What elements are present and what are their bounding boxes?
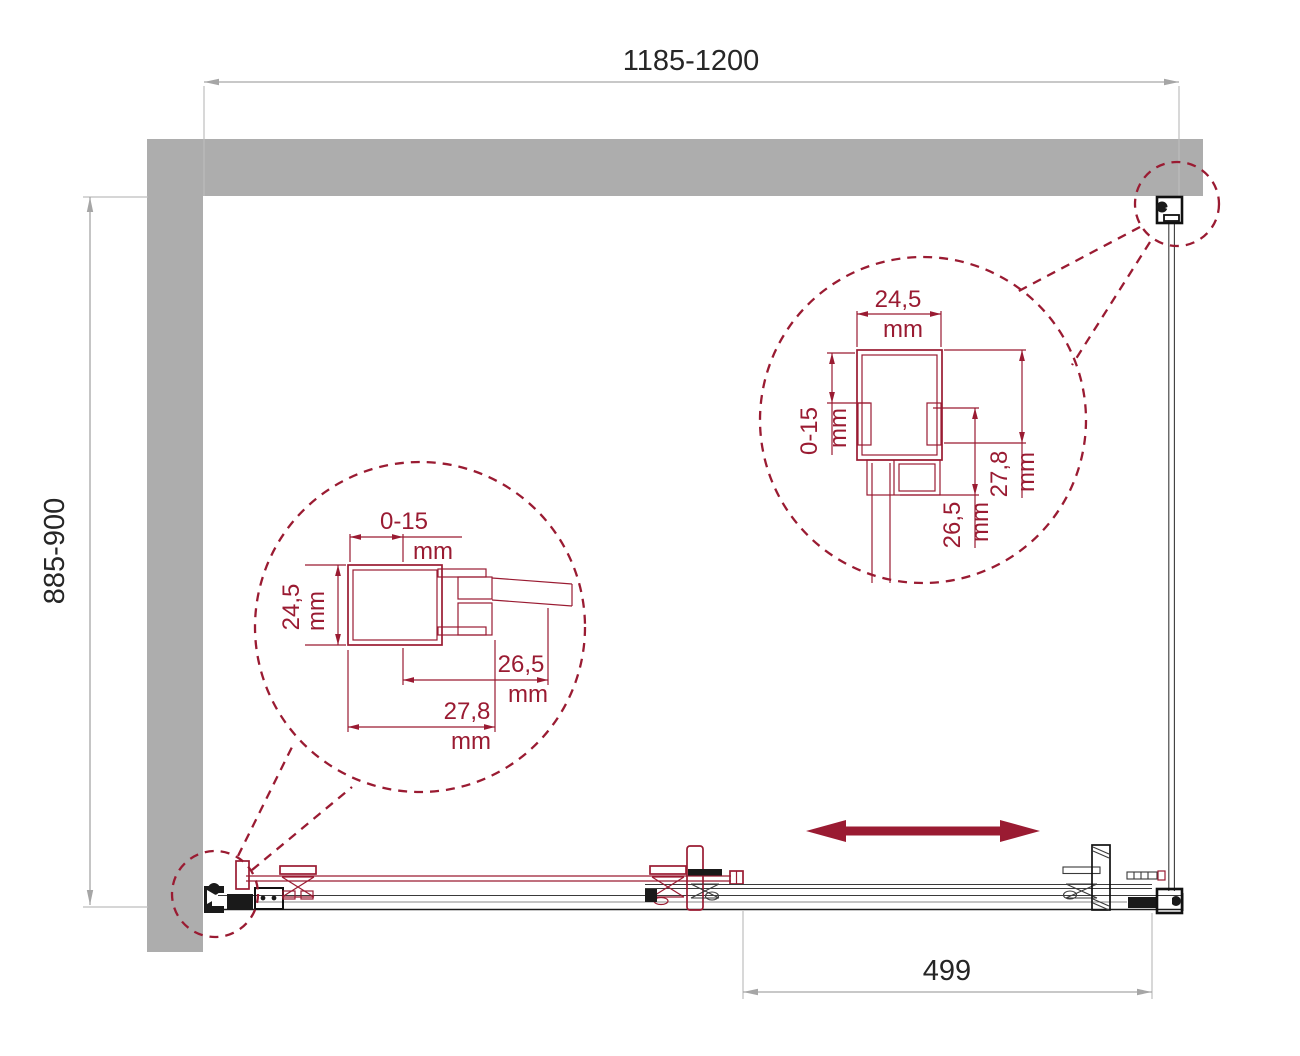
roller-cross [282, 877, 314, 897]
width-dimension-value: 1185-1200 [623, 45, 760, 77]
fixed-roller-cap [688, 869, 722, 876]
bottom-track-assembly [204, 845, 1183, 913]
clamp-plate-top [438, 569, 486, 577]
callout-leader-line [252, 787, 352, 870]
technical-drawing-svg: 1185-1200 885-900 [0, 0, 1300, 1056]
roller-carriage-left [280, 866, 316, 899]
roller-cap [650, 866, 686, 874]
top-wall [147, 139, 1203, 196]
walls [147, 139, 1203, 952]
detail-view-left: 0-15 mm 24,5 mm 26,5 mm 27,8 mm [255, 462, 585, 792]
travel-dimension-value: 499 [923, 955, 971, 987]
roller-cap [280, 866, 316, 874]
side-wall [147, 139, 203, 952]
shower-enclosure-plan-drawing: 1185-1200 885-900 [0, 0, 1300, 1056]
profile-outer [857, 350, 942, 460]
adjust-value: 0-15 [796, 407, 823, 455]
callout-leader-top-right [1015, 227, 1150, 365]
outer-depth-unit: mm [1013, 452, 1040, 492]
callout-leader-bottom-left [238, 745, 352, 870]
clamp-plate-bottom [438, 627, 486, 635]
corner-red-clip [1158, 871, 1165, 880]
adjust-unit: mm [413, 538, 453, 565]
guide-screw [261, 896, 266, 901]
adjust-value: 0-15 [380, 508, 428, 535]
detail-right-dim-inner-depth: 26,5 mm [900, 408, 994, 548]
adjust-unit: mm [825, 408, 852, 448]
detail-right-dim-adjust: 0-15 mm [796, 353, 870, 455]
outer-depth-value: 27,8 [444, 698, 491, 725]
glass-edge [492, 600, 572, 606]
detail-left-dim-adjust: 0-15 mm [350, 508, 462, 565]
guide-block [255, 888, 283, 909]
corner-bar [1127, 872, 1157, 879]
slide-direction-arrow [806, 820, 1040, 842]
bottom-chamber-inner [899, 464, 935, 491]
depth-dimension-value: 885-900 [39, 498, 71, 604]
profile-inner [353, 570, 437, 640]
detail-left-dim-inner-depth: 26,5 mm [403, 608, 548, 708]
outer-depth-unit: mm [451, 728, 491, 755]
bracket-block [227, 894, 253, 910]
detail-left-dim-profile-width: 24,5 mm [278, 565, 346, 645]
detail-view-right: 24,5 mm 0-15 mm 26,5 mm 27,8 mm [760, 257, 1086, 583]
bottom-chamber [867, 460, 940, 495]
profile-outer [348, 565, 442, 645]
track-rails [205, 893, 1183, 911]
inner-depth-unit: mm [508, 681, 548, 708]
corner-block [1128, 897, 1157, 908]
glass-lip-right [927, 403, 941, 445]
roller-cap [1063, 867, 1100, 874]
profile-width-value: 24,5 [875, 286, 922, 313]
corner-bar-ticks [1134, 872, 1148, 879]
door-end-profile [236, 861, 249, 889]
fixture-pivot-dot [1157, 202, 1168, 213]
depth-dimension: 885-900 [39, 197, 148, 907]
outer-depth-value: 27,8 [986, 451, 1013, 498]
corner-dot [1171, 896, 1181, 906]
roller-carriage-right [1063, 845, 1110, 910]
corner-notch [1162, 896, 1172, 907]
inner-depth-value: 26,5 [498, 651, 545, 678]
clamp-chamber [458, 577, 492, 599]
callout-leader-line [238, 745, 293, 856]
glass-edge [492, 578, 572, 584]
roller-carriage-middle [645, 846, 722, 910]
wall-bracket-left [204, 883, 283, 913]
roller-wheel-middle [687, 846, 703, 910]
callout-leader-line [1072, 242, 1150, 365]
fixture-step [1164, 215, 1179, 221]
detail-right-dim-profile-width: 24,5 mm [857, 286, 941, 347]
detail-right-dim-outer-depth: 27,8 mm [944, 350, 1040, 498]
inner-depth-unit: mm [967, 502, 994, 542]
guide-screw [272, 896, 277, 901]
travel-dimension: 499 [743, 911, 1152, 999]
wall-profile-section-right [857, 350, 942, 583]
profile-width-unit: mm [303, 591, 330, 631]
wall-profile-section-left [348, 565, 572, 645]
stop-block [645, 889, 657, 902]
wheel-hatch [1093, 847, 1109, 910]
profile-width-value: 24,5 [278, 584, 305, 631]
profile-inner [862, 355, 937, 455]
detail-left-dim-outer-depth: 27,8 mm [348, 640, 495, 755]
inner-depth-value: 26,5 [939, 502, 966, 549]
clamp-chamber [458, 603, 492, 635]
profile-width-unit: mm [883, 316, 923, 343]
side-glass-panel [1169, 223, 1175, 891]
glass-lip-left [858, 403, 871, 445]
corner-bracket-right [1127, 871, 1182, 913]
callout-leader-line [1015, 227, 1140, 293]
wall-profile-fixture-top-right [1157, 197, 1183, 223]
